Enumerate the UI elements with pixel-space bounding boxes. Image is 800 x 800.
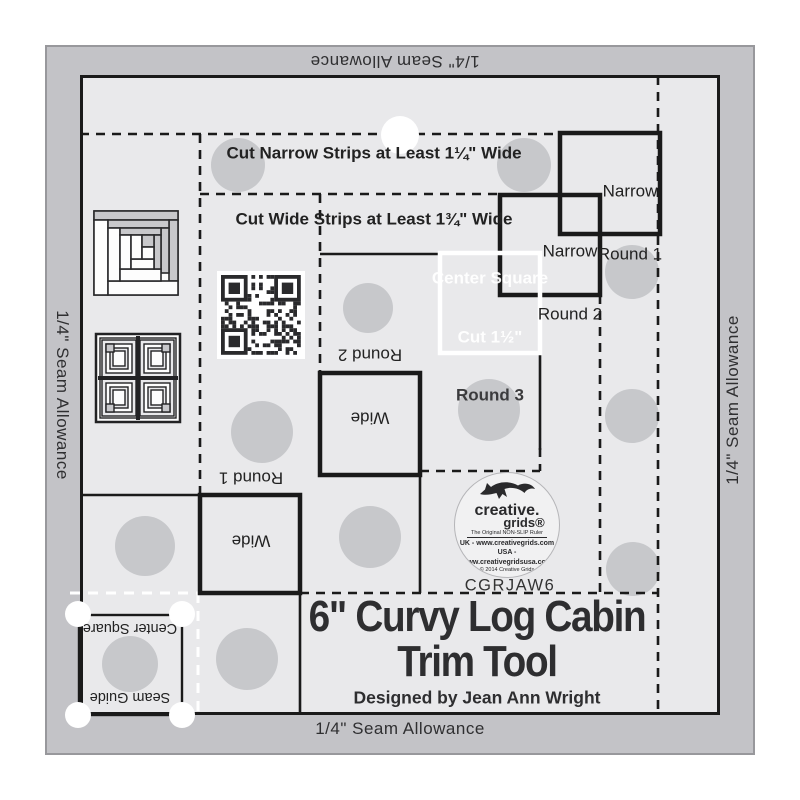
alignment-hole	[65, 702, 91, 728]
product-image-canvas: { "edge_labels": { "top": "1/4\" Seam Al…	[0, 0, 800, 800]
corner-seam-guide-label: Seam Guide	[90, 689, 171, 705]
alignment-hole	[169, 702, 195, 728]
logo-uk-url: UK - www.creativegrids.com	[455, 539, 559, 548]
seam-allowance-label-right: 1/4" Seam Allowance	[723, 315, 743, 485]
wide-round-2-label: Wide Round 2	[338, 323, 402, 468]
product-title-line1: 6" Curvy Log Cabin	[309, 592, 646, 642]
center-square-line2: Cut 1½"	[432, 327, 548, 347]
qr-code	[217, 271, 305, 359]
fox-icon	[475, 479, 539, 501]
designer-credit: Designed by Jean Ann Wright	[354, 688, 601, 709]
seam-allowance-label-top: 1/4" Seam Allowance	[310, 51, 480, 71]
center-square-label: Center Square Cut 1½" Round 3	[432, 229, 548, 424]
grip-circle	[115, 516, 175, 576]
grip-circle	[605, 389, 659, 443]
quilt-layout-diagram	[96, 334, 180, 422]
logo-brand-line2: grids®	[489, 518, 559, 528]
grip-circle	[339, 506, 401, 568]
log-cabin-block-diagram	[94, 211, 178, 295]
logo-tagline: The Original NON-SLIP Ruler	[455, 530, 559, 536]
grip-circle	[606, 542, 660, 596]
strip-instruction-line1: Cut Narrow Strips at Least 1¼" Wide	[226, 143, 521, 165]
grip-circle	[216, 628, 278, 690]
corner-center-square-label: Center Square	[83, 620, 177, 636]
product-title-line2: Trim Tool	[397, 637, 556, 687]
center-square-line1: Center Square	[432, 268, 548, 288]
center-square-line3: Round 3	[432, 386, 548, 406]
strip-instruction-line2: Cut Wide Strips at Least 1¾" Wide	[226, 209, 521, 231]
creative-grids-logo-badge: creative. grids® The Original NON-SLIP R…	[454, 472, 560, 578]
seam-allowance-label-left: 1/4" Seam Allowance	[52, 310, 72, 480]
narrow-round-1-label: Narrow Round 1	[598, 140, 662, 285]
wide-round-1-label: Wide Round 1	[219, 446, 283, 591]
seam-allowance-label-bottom: 1/4" Seam Allowance	[315, 719, 485, 739]
grip-circle	[102, 636, 158, 692]
